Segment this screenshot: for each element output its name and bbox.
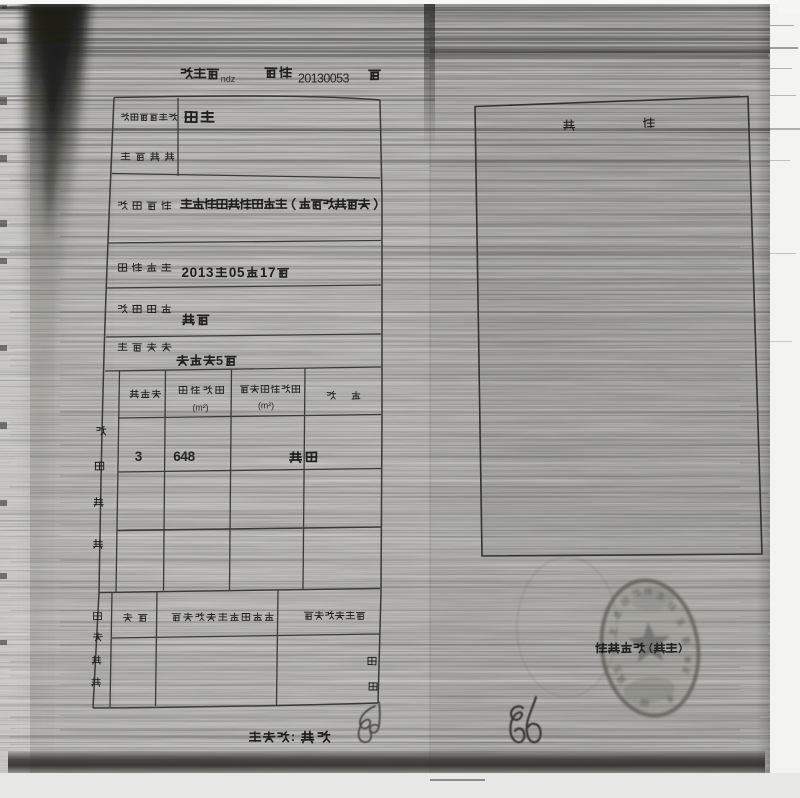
svg-text:3: 3 (135, 449, 143, 464)
svg-text:(m²): (m²) (192, 403, 208, 413)
svg-text:0: 0 (190, 265, 198, 280)
svg-text::: : (291, 729, 295, 744)
svg-text:(m²): (m²) (258, 401, 274, 411)
svg-text:1: 1 (260, 265, 268, 280)
svg-text:7: 7 (268, 265, 276, 280)
svg-text:0: 0 (229, 265, 237, 280)
svg-text:5: 5 (216, 353, 223, 368)
svg-text:ndz: ndz (221, 74, 236, 84)
svg-text:5: 5 (237, 265, 245, 280)
svg-text:2: 2 (181, 265, 189, 280)
svg-text:1: 1 (198, 265, 206, 280)
svg-text:3: 3 (206, 265, 214, 280)
svg-text:20130053: 20130053 (298, 72, 349, 86)
svg-text:648: 648 (173, 449, 195, 464)
